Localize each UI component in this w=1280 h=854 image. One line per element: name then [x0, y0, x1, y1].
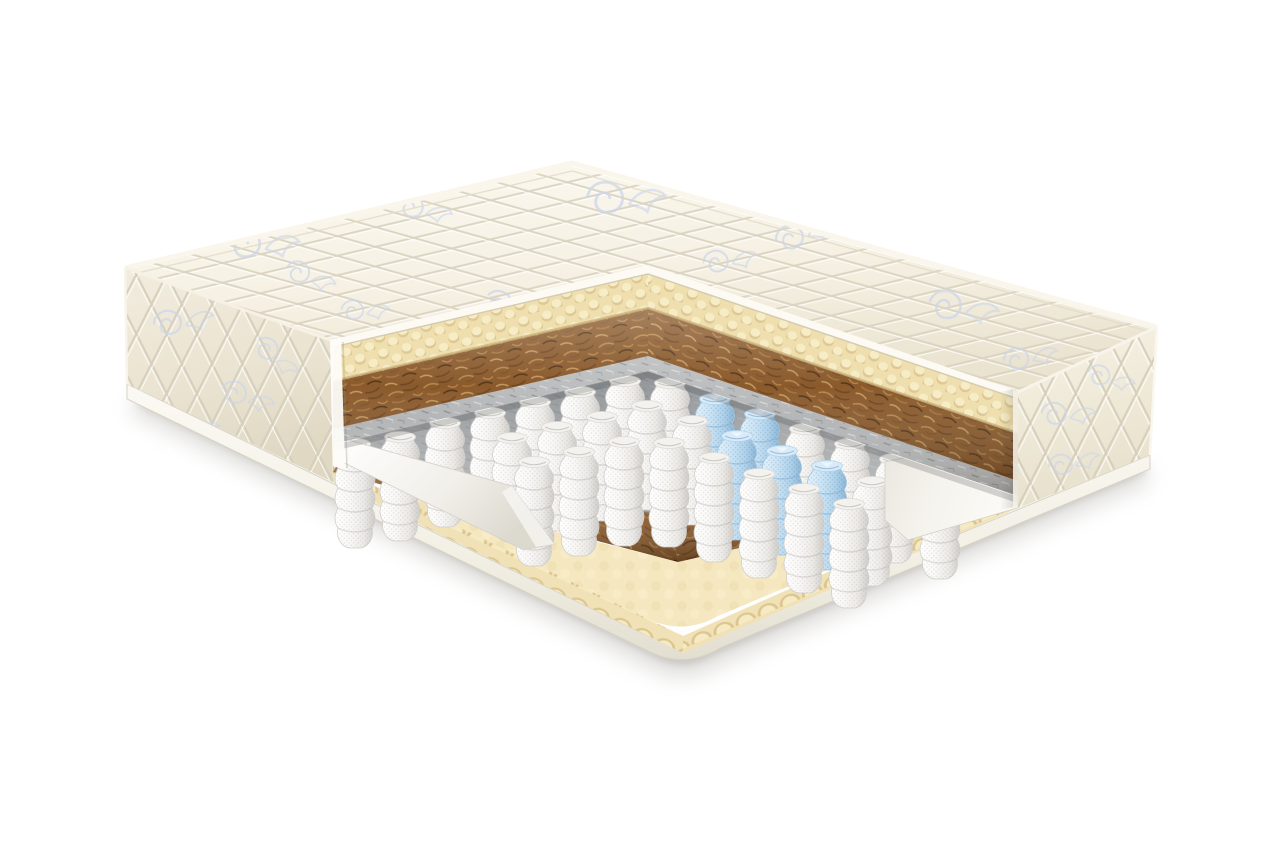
- mattress-cutaway-illustration: Cutaway illustration of an orthopedic po…: [0, 0, 1280, 854]
- pocket-spring: [604, 437, 644, 547]
- pocket-spring: [649, 438, 689, 548]
- product-image-canvas: Cutaway illustration of an orthopedic po…: [0, 0, 1280, 854]
- pocket-spring: [694, 453, 734, 563]
- pocket-spring: [739, 469, 779, 579]
- pocket-spring: [559, 447, 599, 557]
- pocket-spring: [829, 499, 869, 609]
- pocket-spring: [784, 484, 824, 594]
